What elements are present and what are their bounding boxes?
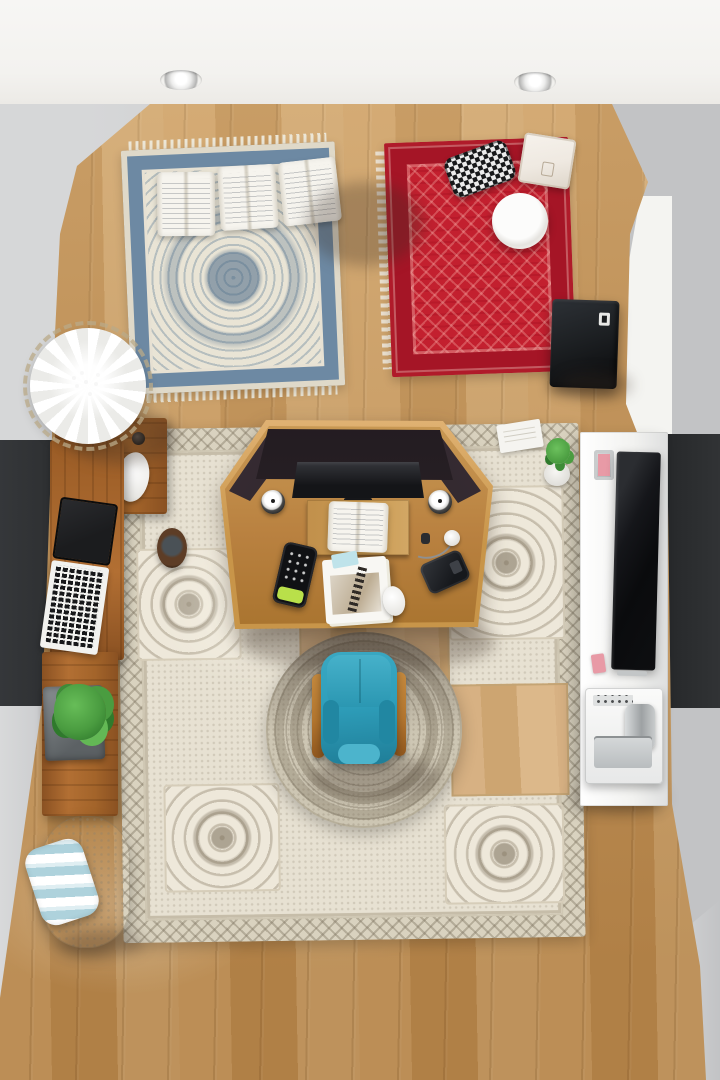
recessed-light-icon [160,70,202,90]
photo-frame [594,450,614,480]
desk-speaker [428,490,452,514]
magazine [322,556,390,624]
shadow [558,372,632,398]
laptop-keyboard [40,560,110,655]
round-tray [492,193,548,249]
parasol-pattern [84,380,88,384]
potted-plant [32,668,124,764]
laptop-screen [52,497,118,566]
gift-box [517,132,576,190]
chair-bolster [379,700,395,744]
coffee-cup [157,528,187,568]
dark-wall-right [664,434,720,708]
earbud-icon [421,533,430,544]
open-book [217,164,279,231]
rug-medallion [444,803,565,905]
tv-screen [611,451,661,670]
recessed-light-icon [514,72,556,92]
open-notebook [327,501,389,553]
desk [220,418,494,630]
rug-medallion [163,783,280,893]
shadow [306,182,424,266]
paper-note [331,551,359,569]
desk-speaker [261,490,285,514]
office-chair [312,652,406,768]
parasol [30,328,146,444]
plant-foliage [54,684,106,740]
blue-rug [121,141,345,394]
laptop-keys [46,565,104,649]
shadow [58,930,144,956]
printer-tray [594,736,652,768]
monitor [292,462,424,498]
ceiling [0,0,720,104]
sticky-note [591,653,607,674]
chair-front-lip [338,744,380,764]
earbud-icon [444,530,460,546]
chair-bolster [323,700,339,744]
room-top-view [0,0,720,1080]
plant-foliage [546,438,570,464]
chair-backrest [327,655,391,707]
small-plant [532,436,580,490]
printer-buttons [593,695,633,706]
printer [585,688,663,784]
open-book [157,172,216,237]
media-cabinet [580,432,668,806]
rug-wood-panel [450,683,570,797]
plant-pot [544,462,570,486]
